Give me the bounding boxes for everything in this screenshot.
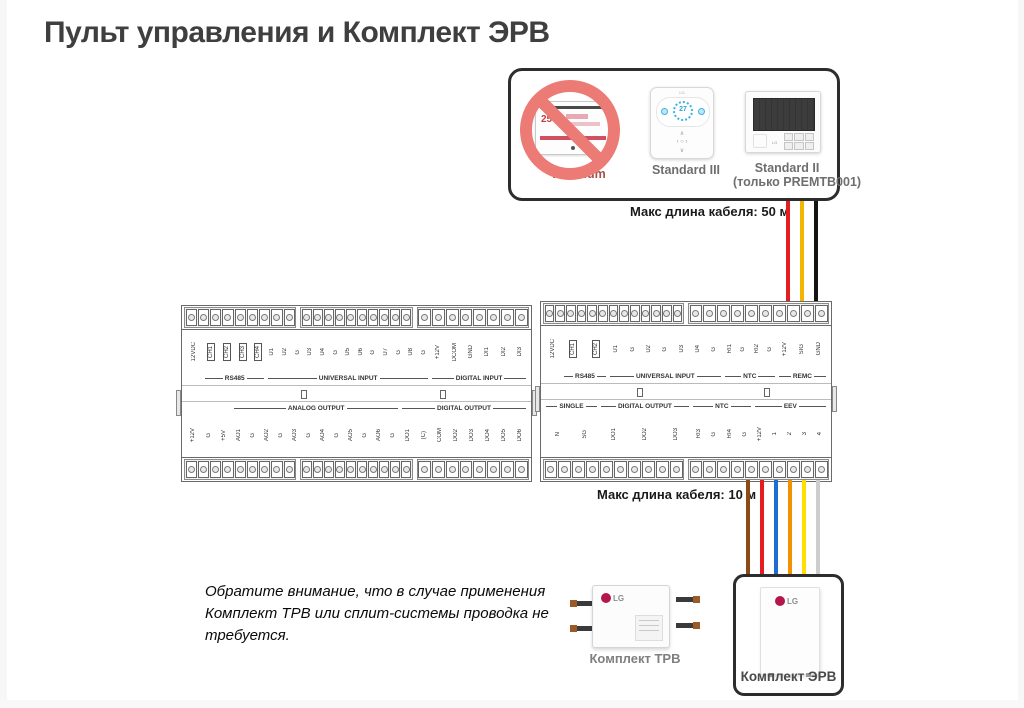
screw-icon bbox=[653, 310, 660, 317]
screw-icon bbox=[762, 310, 769, 317]
screw-terminal bbox=[302, 461, 312, 478]
screw-terminal bbox=[703, 461, 716, 478]
screw-terminal bbox=[815, 461, 828, 478]
screw-icon bbox=[663, 310, 670, 317]
screw-icon bbox=[421, 314, 428, 321]
pin-labels: +12VSIGGND bbox=[777, 327, 828, 371]
screw-icon bbox=[546, 310, 553, 317]
pin-label: G bbox=[333, 350, 339, 355]
screw-icon bbox=[449, 466, 456, 473]
screw-terminal bbox=[773, 305, 786, 322]
lg-logo-text: LG bbox=[787, 597, 798, 606]
trv-kit: LG Комплект ТРВ bbox=[574, 585, 696, 665]
pin-labels: 12VDC bbox=[544, 327, 562, 371]
screw-terminal bbox=[487, 309, 500, 326]
section-name: DIGITAL OUTPUT bbox=[599, 401, 691, 412]
pin-label: U3 bbox=[679, 345, 685, 353]
screw-terminal bbox=[401, 461, 411, 478]
pin-label: G bbox=[630, 347, 636, 352]
eev-cable-wire-orange bbox=[788, 480, 792, 577]
screw-terminal bbox=[473, 309, 486, 326]
standard3-screen: 27 bbox=[656, 97, 710, 127]
pin-label: (C) bbox=[421, 431, 427, 439]
remote-cable-wire-red bbox=[786, 201, 790, 307]
screw-icon bbox=[421, 466, 428, 473]
page-title: Пульт управления и Комплект ЭРВ bbox=[44, 16, 550, 50]
screw-icon bbox=[674, 310, 681, 317]
screw-terminal bbox=[222, 461, 233, 478]
screw-icon bbox=[237, 314, 244, 321]
screw-terminal bbox=[642, 461, 655, 478]
pipe-stub bbox=[676, 623, 696, 628]
section-name-text: NTC bbox=[715, 403, 728, 410]
eev-cable-wire-gray bbox=[816, 480, 820, 577]
pin-label: COM bbox=[437, 428, 443, 442]
screw-icon bbox=[706, 466, 713, 473]
screw-terminal bbox=[690, 461, 703, 478]
screw-icon bbox=[314, 466, 321, 473]
screw-icon bbox=[504, 466, 511, 473]
screw-terminal bbox=[815, 305, 828, 322]
screw-terminal bbox=[324, 309, 334, 326]
slide-edge-right bbox=[1018, 0, 1024, 708]
screw-terminal bbox=[487, 461, 500, 478]
pin-label: 3 bbox=[802, 432, 808, 435]
prohibition-slash bbox=[535, 95, 606, 166]
snowflake-icon bbox=[661, 108, 668, 115]
pin-label: RI3 bbox=[696, 429, 702, 438]
screw-terminal bbox=[759, 461, 772, 478]
screw-terminal bbox=[198, 309, 209, 326]
screw-icon bbox=[314, 314, 321, 321]
screw-terminal bbox=[656, 461, 669, 478]
screw-icon bbox=[631, 310, 638, 317]
screw-terminal bbox=[641, 305, 651, 322]
screw-icon bbox=[200, 466, 207, 473]
remote-cable-wire-yellow bbox=[800, 201, 804, 307]
io-module-left: 12VDCCH1CH2CH3CH4RS485U1U2GU3U4GU5U6GU7G… bbox=[181, 305, 532, 482]
pin-label: 4 bbox=[817, 432, 823, 435]
standard3-label: Standard III bbox=[626, 163, 746, 177]
screw-icon bbox=[603, 466, 610, 473]
pin-label: DO5 bbox=[501, 429, 507, 441]
pin-label: DCOM bbox=[452, 343, 458, 361]
standard2-screen bbox=[753, 98, 815, 131]
screw-terminal bbox=[673, 305, 683, 322]
pin-label: DO2 bbox=[642, 428, 648, 440]
screw-icon bbox=[359, 314, 366, 321]
screw-icon bbox=[476, 314, 483, 321]
screw-icon bbox=[261, 466, 268, 473]
screw-terminal bbox=[247, 461, 258, 478]
lg-logo-text: LG bbox=[613, 594, 624, 603]
pin-label: U3 bbox=[307, 348, 313, 356]
pin-label: G bbox=[711, 347, 717, 352]
screw-icon bbox=[370, 314, 377, 321]
trv-kit-label: Комплект ТРВ bbox=[574, 651, 696, 666]
screw-icon bbox=[804, 310, 811, 317]
pin-label: U2 bbox=[646, 345, 652, 353]
screw-icon bbox=[790, 310, 797, 317]
io-module-right: 12VDCCH1CH2RS485U1GU2GU3U4GUNIVERSAL INP… bbox=[540, 301, 832, 482]
pin-label: U2 bbox=[282, 348, 288, 356]
pin-label: AO4 bbox=[320, 429, 326, 441]
pin-labels: CH1CH2 bbox=[562, 327, 608, 371]
screw-icon bbox=[673, 466, 680, 473]
section-name: NTC bbox=[723, 371, 777, 382]
screw-icon bbox=[692, 310, 699, 317]
screw-icon bbox=[325, 466, 332, 473]
screw-terminal bbox=[335, 461, 345, 478]
terminal-strip-top bbox=[182, 306, 531, 330]
screw-terminal bbox=[515, 309, 528, 326]
pin-label: AO5 bbox=[348, 429, 354, 441]
pin-label: AO3 bbox=[292, 429, 298, 441]
pin-label: G bbox=[250, 433, 256, 438]
standard3-nav-buttons: ∧‹ ○ ›∨ bbox=[651, 130, 713, 155]
terminal-strip-bottom bbox=[182, 457, 531, 481]
pin-label: 12VDC bbox=[550, 339, 556, 358]
screw-terminal bbox=[515, 461, 528, 478]
lg-brand-text: LG bbox=[651, 90, 713, 95]
screw-icon bbox=[575, 466, 582, 473]
screw-terminal bbox=[600, 461, 613, 478]
screw-icon bbox=[599, 310, 606, 317]
section-name: REMC bbox=[777, 371, 828, 382]
section-name bbox=[185, 403, 232, 414]
pin-section: SINGLENSG bbox=[544, 401, 599, 456]
screw-terminal bbox=[284, 309, 295, 326]
pin-label: RI4 bbox=[727, 429, 733, 438]
screw-icon bbox=[462, 314, 469, 321]
terminal-group bbox=[184, 307, 296, 328]
pin-section: +12VG+5V bbox=[185, 403, 232, 456]
module-detail bbox=[637, 388, 643, 397]
pin-label: U1 bbox=[269, 348, 275, 356]
section-name-text: UNIVERSAL INPUT bbox=[319, 375, 378, 382]
screw-terminal bbox=[787, 461, 800, 478]
screw-icon bbox=[261, 314, 268, 321]
screw-icon bbox=[547, 466, 554, 473]
screw-terminal bbox=[259, 461, 270, 478]
section-name: DIGITAL INPUT bbox=[430, 373, 528, 384]
screw-terminal bbox=[235, 461, 246, 478]
pin-labels: +12VG+5V bbox=[185, 414, 232, 456]
pin-section: CH1CH2RS485 bbox=[562, 327, 608, 382]
remote-cable-wire-black bbox=[814, 201, 818, 307]
din-clip bbox=[832, 386, 837, 412]
screw-terminal bbox=[186, 309, 197, 326]
pin-label: G bbox=[370, 350, 376, 355]
standard2-buttons bbox=[784, 133, 814, 150]
pin-sections-top: 12VDCCH1CH2RS485U1GU2GU3U4GUNIVERSAL INP… bbox=[541, 326, 831, 383]
pin-label: G bbox=[740, 347, 746, 352]
pin-label: U6 bbox=[358, 348, 364, 356]
screw-terminal bbox=[801, 461, 814, 478]
trv-sticker bbox=[635, 615, 663, 641]
screw-terminal bbox=[558, 461, 571, 478]
screw-icon bbox=[557, 310, 564, 317]
screw-icon bbox=[790, 466, 797, 473]
pin-sections-top: 12VDCCH1CH2CH3CH4RS485U1U2GU3U4GU5U6GU7G… bbox=[182, 330, 531, 385]
screw-terminal bbox=[745, 461, 758, 478]
standard2-cover bbox=[753, 134, 767, 148]
section-name bbox=[185, 373, 203, 384]
terminal-group bbox=[184, 459, 296, 480]
pin-label: 2 bbox=[787, 432, 793, 435]
terminal-group bbox=[417, 307, 529, 328]
screw-terminal bbox=[210, 461, 221, 478]
pipe-stub bbox=[676, 597, 696, 602]
screw-icon bbox=[359, 466, 366, 473]
pin-label: CH2 bbox=[592, 340, 600, 358]
pin-label: CH3 bbox=[239, 343, 247, 361]
pipe-stub bbox=[574, 626, 593, 631]
screw-terminal bbox=[313, 309, 323, 326]
lg-logo: LG bbox=[775, 596, 798, 606]
screw-icon bbox=[734, 466, 741, 473]
screw-terminal bbox=[284, 461, 295, 478]
pin-labels: +12V1234 bbox=[753, 412, 828, 456]
module-body bbox=[182, 385, 531, 402]
din-clip bbox=[535, 386, 540, 412]
pin-label: G bbox=[295, 350, 301, 355]
screw-icon bbox=[200, 314, 207, 321]
section-name bbox=[544, 371, 562, 382]
pin-label: G bbox=[662, 347, 668, 352]
section-name: UNIVERSAL INPUT bbox=[608, 371, 723, 382]
section-name-text: DIGITAL INPUT bbox=[456, 375, 503, 382]
screw-terminal bbox=[731, 461, 744, 478]
screw-icon bbox=[589, 310, 596, 317]
screw-icon bbox=[642, 310, 649, 317]
screw-terminal bbox=[670, 461, 683, 478]
screw-terminal bbox=[630, 305, 640, 322]
screw-terminal bbox=[418, 461, 431, 478]
eev-cable-wire-red bbox=[760, 480, 764, 577]
pin-label: CH1 bbox=[207, 343, 215, 361]
pin-label: CH4 bbox=[254, 343, 262, 361]
screw-icon bbox=[804, 466, 811, 473]
screw-terminal bbox=[379, 461, 389, 478]
screw-terminal bbox=[545, 461, 558, 478]
screw-terminal bbox=[545, 305, 555, 322]
screw-terminal bbox=[357, 461, 367, 478]
screw-terminal bbox=[717, 461, 730, 478]
screw-icon bbox=[645, 466, 652, 473]
pin-label: U4 bbox=[695, 345, 701, 353]
screw-icon bbox=[578, 310, 585, 317]
pin-label: +12V bbox=[782, 342, 788, 356]
pin-label: GND bbox=[468, 345, 474, 358]
pin-label: G bbox=[390, 433, 396, 438]
pin-labels: RI1GRI2G bbox=[723, 327, 777, 371]
pin-section: 12VDC bbox=[185, 331, 203, 384]
screw-terminal bbox=[555, 305, 565, 322]
screw-icon bbox=[381, 314, 388, 321]
screw-terminal bbox=[787, 305, 800, 322]
screw-terminal bbox=[324, 461, 334, 478]
screw-terminal bbox=[302, 309, 312, 326]
section-name: NTC bbox=[691, 401, 753, 412]
pin-labels: DO1(C)COMDO2DO3DO4DO5DO6 bbox=[400, 414, 528, 456]
screw-terminal bbox=[619, 305, 629, 322]
screw-icon bbox=[249, 466, 256, 473]
section-name: RS485 bbox=[203, 373, 266, 384]
screw-icon bbox=[610, 310, 617, 317]
screw-icon bbox=[818, 310, 825, 317]
lg-logo-icon bbox=[601, 593, 611, 603]
screw-terminal bbox=[572, 461, 585, 478]
lg-logo-icon bbox=[775, 596, 785, 606]
screw-icon bbox=[370, 466, 377, 473]
pin-label: +5V bbox=[221, 430, 227, 441]
screw-icon bbox=[273, 314, 280, 321]
pin-label: 1 bbox=[772, 432, 778, 435]
pin-label: U7 bbox=[383, 348, 389, 356]
pin-label: RI2 bbox=[754, 344, 760, 353]
screw-terminal bbox=[368, 309, 378, 326]
screw-terminal bbox=[210, 309, 221, 326]
screw-terminal bbox=[271, 309, 282, 326]
screw-terminal bbox=[759, 305, 772, 322]
screw-terminal bbox=[501, 461, 514, 478]
pin-label: AO1 bbox=[236, 429, 242, 441]
screw-icon bbox=[449, 314, 456, 321]
slide-edge-bottom bbox=[0, 700, 1024, 708]
pin-labels: +12VDCOMGNDDI1DI2DI3 bbox=[430, 331, 528, 373]
screw-terminal bbox=[773, 461, 786, 478]
pin-label: N bbox=[555, 432, 561, 436]
screw-terminal bbox=[566, 305, 576, 322]
screw-icon bbox=[403, 466, 410, 473]
module-detail bbox=[440, 390, 446, 399]
screw-icon bbox=[188, 466, 195, 473]
pin-section: U1U2GU3U4GU5U6GU7GU8GUNIVERSAL INPUT bbox=[266, 331, 430, 384]
pin-sections-bottom: +12VG+5VANALOG OUTPUTAO1GAO2GAO3GAO4GAO5… bbox=[182, 402, 531, 457]
screw-icon bbox=[212, 314, 219, 321]
screw-terminal bbox=[418, 309, 431, 326]
screw-terminal bbox=[690, 305, 703, 322]
pin-label: U8 bbox=[408, 348, 414, 356]
pin-label: DO1 bbox=[611, 428, 617, 440]
screw-terminal bbox=[259, 309, 270, 326]
pin-section: 12VDC bbox=[544, 327, 562, 382]
pin-label: GND bbox=[816, 342, 822, 355]
section-name: RS485 bbox=[562, 371, 608, 382]
screw-terminal bbox=[662, 305, 672, 322]
standard2-remote: LG bbox=[745, 91, 821, 153]
pin-labels: AO1GAO2GAO3GAO4GAO5GAO6G bbox=[232, 414, 400, 456]
pin-label: 12VDC bbox=[191, 342, 197, 361]
screw-terminal bbox=[390, 309, 400, 326]
screw-icon bbox=[325, 314, 332, 321]
section-name-text: DIGITAL OUTPUT bbox=[618, 403, 672, 410]
screw-icon bbox=[621, 310, 628, 317]
pin-label: G bbox=[396, 350, 402, 355]
screw-icon bbox=[476, 466, 483, 473]
pin-labels: 12VDC bbox=[185, 331, 203, 373]
screw-terminal bbox=[586, 461, 599, 478]
screw-terminal bbox=[432, 461, 445, 478]
pin-label: G bbox=[278, 433, 284, 438]
screw-icon bbox=[706, 310, 713, 317]
erv-kit-label: Комплект ЭРВ bbox=[736, 669, 841, 684]
screw-icon bbox=[381, 466, 388, 473]
lg-brand-text: LG bbox=[772, 140, 777, 145]
terminal-strip-bottom bbox=[541, 457, 831, 481]
snowflake-icon bbox=[698, 108, 705, 115]
pin-section: ANALOG OUTPUTAO1GAO2GAO3GAO4GAO5GAO6G bbox=[232, 403, 400, 456]
cable-length-label-bottom: Макс длина кабеля: 10 м bbox=[597, 487, 756, 502]
pin-label: DO3 bbox=[673, 428, 679, 440]
screw-icon bbox=[403, 314, 410, 321]
pin-label: U1 bbox=[613, 345, 619, 353]
screw-icon bbox=[336, 314, 343, 321]
lg-logo: LG bbox=[601, 593, 624, 603]
pin-label: G bbox=[334, 433, 340, 438]
pin-label: G bbox=[421, 350, 427, 355]
pin-label: DO4 bbox=[485, 429, 491, 441]
pin-section: +12VDCOMGNDDI1DI2DI3DIGITAL INPUT bbox=[430, 331, 528, 384]
erv-kit-box: LG Комплект ЭРВ bbox=[733, 574, 844, 696]
pin-label: G bbox=[362, 433, 368, 438]
note-text: Обратите внимание, что в случае применен… bbox=[205, 581, 590, 646]
standard2-label: Standard II (только PREMTB001) bbox=[733, 161, 841, 190]
screw-terminal bbox=[198, 461, 209, 478]
standard2-label-line2: (только PREMTB001) bbox=[733, 175, 841, 189]
screw-icon bbox=[286, 314, 293, 321]
screw-icon bbox=[818, 466, 825, 473]
screw-terminal bbox=[801, 305, 814, 322]
module-body bbox=[541, 383, 831, 400]
pin-label: DO1 bbox=[405, 429, 411, 441]
screw-icon bbox=[435, 466, 442, 473]
pin-label: G bbox=[767, 347, 773, 352]
pin-label: +12V bbox=[757, 427, 763, 441]
section-name-text: DIGITAL OUTPUT bbox=[437, 405, 491, 412]
screw-terminal bbox=[745, 305, 758, 322]
section-name-text: NTC bbox=[743, 373, 756, 380]
cable-length-label-top: Макс длина кабеля: 50 м bbox=[630, 204, 789, 219]
screw-icon bbox=[237, 466, 244, 473]
screw-icon bbox=[224, 314, 231, 321]
pin-label: G bbox=[306, 433, 312, 438]
pin-label: G bbox=[711, 432, 717, 437]
eev-cable-wire-blue bbox=[774, 480, 778, 577]
screw-terminal bbox=[186, 461, 197, 478]
screw-terminal bbox=[401, 309, 411, 326]
section-name-text: ANALOG OUTPUT bbox=[288, 405, 345, 412]
pin-section: RI1GRI2GNTC bbox=[723, 327, 777, 382]
screw-icon bbox=[303, 314, 310, 321]
pin-label: G bbox=[742, 432, 748, 437]
terminal-group bbox=[543, 303, 684, 324]
screw-icon bbox=[273, 466, 280, 473]
screw-icon bbox=[490, 314, 497, 321]
pin-label: CH2 bbox=[223, 343, 231, 361]
screw-terminal bbox=[731, 305, 744, 322]
screw-terminal bbox=[598, 305, 608, 322]
pin-sections-bottom: SINGLENSGDIGITAL OUTPUTDO1DO2DO3NTCRI3GR… bbox=[541, 400, 831, 457]
pin-label: AO6 bbox=[376, 429, 382, 441]
pin-label: CH1 bbox=[569, 340, 577, 358]
pin-label: DO2 bbox=[453, 429, 459, 441]
screw-terminal bbox=[614, 461, 627, 478]
pin-section: CH1CH2CH3CH4RS485 bbox=[203, 331, 266, 384]
section-name: UNIVERSAL INPUT bbox=[266, 373, 430, 384]
screw-terminal bbox=[335, 309, 345, 326]
